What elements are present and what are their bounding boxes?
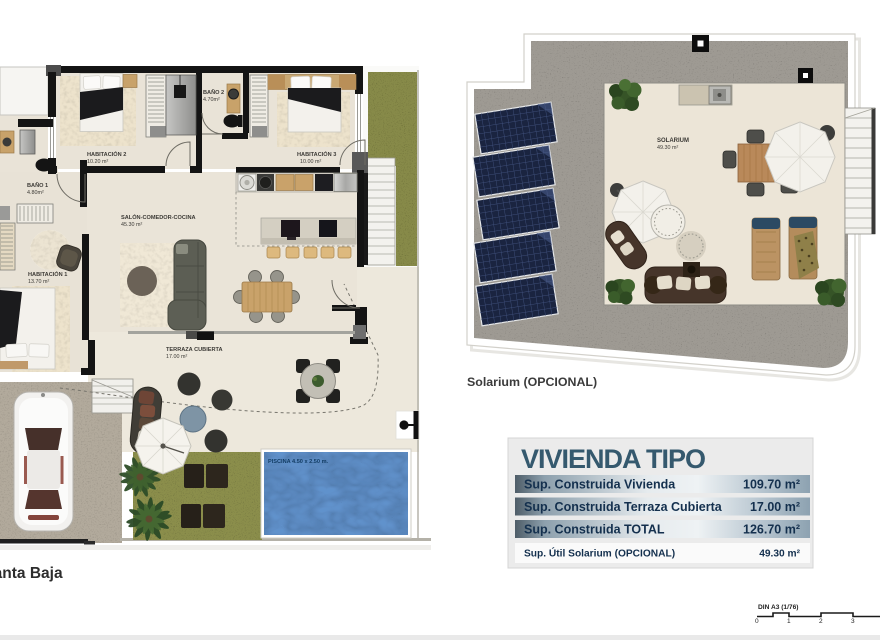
- svg-text:49.30 m²: 49.30 m²: [759, 549, 800, 560]
- svg-text:0: 0: [755, 618, 759, 625]
- svg-text:Planta Baja: Planta Baja: [0, 565, 63, 582]
- svg-text:13.70 m²: 13.70 m²: [28, 279, 49, 285]
- svg-text:49.30 m²: 49.30 m²: [657, 145, 678, 151]
- svg-text:45.30 m²: 45.30 m²: [121, 222, 142, 228]
- svg-text:SALÓN-COMEDOR-COCINA: SALÓN-COMEDOR-COCINA: [121, 213, 196, 221]
- svg-text:4.80m²: 4.80m²: [27, 190, 44, 196]
- svg-text:Sup. Construida Vivienda: Sup. Construida Vivienda: [524, 478, 676, 492]
- svg-text:126.70 m²: 126.70 m²: [743, 523, 800, 537]
- svg-text:PISCINA 4.50 x 2.50 m.: PISCINA 4.50 x 2.50 m.: [268, 459, 329, 465]
- svg-text:HABITACIÓN 2: HABITACIÓN 2: [87, 150, 126, 158]
- svg-text:BAÑO 2: BAÑO 2: [203, 89, 224, 96]
- svg-text:3: 3: [851, 618, 855, 625]
- svg-text:17.00 m²: 17.00 m²: [750, 500, 800, 514]
- svg-text:Solarium (OPCIONAL): Solarium (OPCIONAL): [467, 375, 597, 389]
- svg-text:17.00 m²: 17.00 m²: [166, 354, 187, 360]
- svg-text:VIVIENDA TIPO: VIVIENDA TIPO: [521, 444, 705, 474]
- svg-text:HABITACIÓN 1: HABITACIÓN 1: [28, 270, 67, 278]
- svg-text:HABITACIÓN 3: HABITACIÓN 3: [297, 150, 336, 158]
- svg-text:10.20 m²: 10.20 m²: [87, 159, 108, 165]
- svg-text:Sup. Construida Terraza Cubier: Sup. Construida Terraza Cubierta: [524, 500, 723, 514]
- svg-text:10.00 m²: 10.00 m²: [300, 159, 321, 165]
- svg-text:109.70 m²: 109.70 m²: [743, 478, 800, 492]
- svg-text:4.70m²: 4.70m²: [203, 97, 220, 103]
- svg-text:BAÑO 1: BAÑO 1: [27, 182, 48, 189]
- svg-text:SOLARIUM: SOLARIUM: [657, 138, 689, 144]
- svg-text:2: 2: [819, 618, 823, 625]
- svg-text:DIN A3 (1/76): DIN A3 (1/76): [758, 604, 798, 611]
- svg-text:1: 1: [787, 618, 791, 625]
- svg-text:Sup. Útil Solarium (OPCIONAL): Sup. Útil Solarium (OPCIONAL): [524, 547, 675, 560]
- svg-text:Sup. Construida TOTAL: Sup. Construida TOTAL: [524, 523, 665, 537]
- svg-text:TERRAZA CUBIERTA: TERRAZA CUBIERTA: [166, 347, 223, 353]
